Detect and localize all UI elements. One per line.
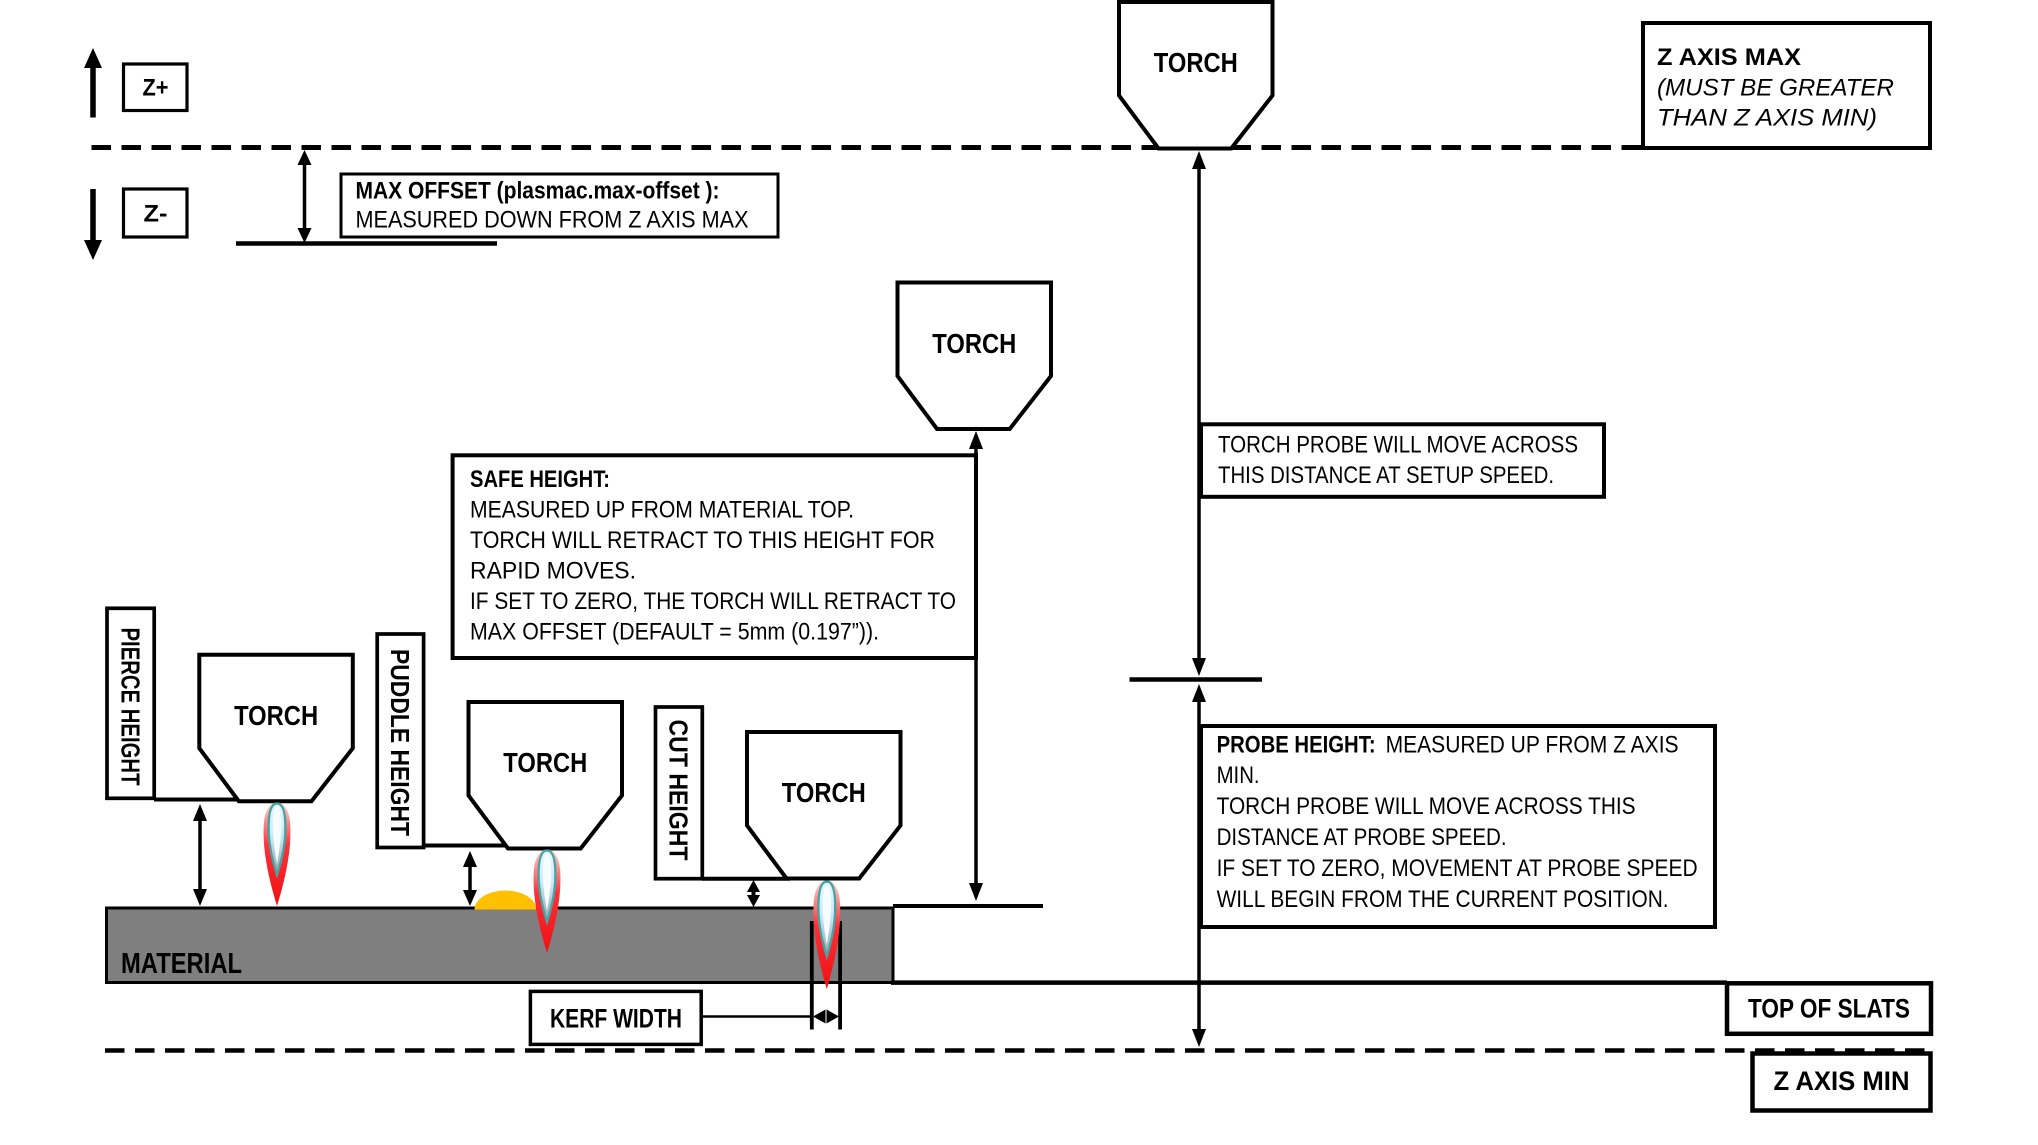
svg-text:MIN.: MIN. [1217, 762, 1260, 789]
svg-text:RAPID MOVES.: RAPID MOVES. [470, 558, 636, 585]
svg-text:MEASURED UP FROM Z AXIS: MEASURED UP FROM Z AXIS [1386, 731, 1679, 758]
svg-text:Z AXIS MIN: Z AXIS MIN [1774, 1066, 1910, 1096]
svg-text:PIERCE HEIGHT: PIERCE HEIGHT [115, 628, 145, 786]
svg-text:DISTANCE AT PROBE SPEED.: DISTANCE AT PROBE SPEED. [1217, 824, 1507, 851]
svg-text:PROBE HEIGHT:: PROBE HEIGHT: [1217, 731, 1376, 758]
svg-text:MEASURED DOWN FROM Z AXIS MAX: MEASURED DOWN FROM Z AXIS MAX [356, 206, 749, 233]
svg-text:SAFE HEIGHT:: SAFE HEIGHT: [470, 466, 610, 493]
svg-text:TORCH WILL RETRACT TO THIS HEI: TORCH WILL RETRACT TO THIS HEIGHT FOR [470, 527, 935, 554]
svg-text:THIS DISTANCE AT SETUP SPEED.: THIS DISTANCE AT SETUP SPEED. [1218, 462, 1554, 489]
svg-text:THAN Z AXIS MIN): THAN Z AXIS MIN) [1657, 104, 1877, 131]
svg-text:MAX OFFSET (plasmac.max-offset: MAX OFFSET (plasmac.max-offset ): [356, 178, 720, 205]
svg-text:MAX OFFSET (DEFAULT = 5mm (0.1: MAX OFFSET (DEFAULT = 5mm (0.197”)). [470, 619, 879, 646]
svg-text:Z-: Z- [144, 201, 168, 228]
svg-text:TORCH: TORCH [503, 747, 587, 778]
svg-text:KERF WIDTH: KERF WIDTH [550, 1004, 682, 1034]
svg-text:(MUST BE GREATER: (MUST BE GREATER [1657, 74, 1894, 101]
svg-text:TORCH: TORCH [932, 328, 1016, 359]
svg-text:MATERIAL: MATERIAL [121, 948, 242, 980]
svg-text:TORCH PROBE WILL MOVE ACROSS: TORCH PROBE WILL MOVE ACROSS [1218, 431, 1578, 458]
svg-text:TORCH: TORCH [1154, 47, 1238, 78]
svg-text:IF SET TO ZERO, MOVEMENT AT P: IF SET TO ZERO, MOVEMENT AT PROBE SPEED [1217, 855, 1698, 882]
svg-text:TOP OF SLATS: TOP OF SLATS [1748, 994, 1910, 1024]
svg-text:TORCH: TORCH [782, 777, 866, 808]
svg-text:PUDDLE HEIGHT: PUDDLE HEIGHT [385, 649, 415, 836]
svg-text:TORCH PROBE WILL MOVE ACROSS T: TORCH PROBE WILL MOVE ACROSS THIS [1217, 793, 1636, 820]
svg-text:WILL BEGIN FROM THE CURRENT PO: WILL BEGIN FROM THE CURRENT POSITION. [1217, 886, 1669, 913]
svg-text:MEASURED UP FROM MATERIAL TOP.: MEASURED UP FROM MATERIAL TOP. [470, 497, 854, 524]
svg-text:TORCH: TORCH [234, 700, 318, 731]
svg-text:IF SET TO ZERO, THE TORCH WILL: IF SET TO ZERO, THE TORCH WILL RETRACT T… [470, 588, 956, 615]
svg-text:Z+: Z+ [143, 75, 169, 102]
svg-text:Z AXIS MAX: Z AXIS MAX [1657, 44, 1801, 71]
svg-text:CUT HEIGHT: CUT HEIGHT [664, 720, 694, 861]
